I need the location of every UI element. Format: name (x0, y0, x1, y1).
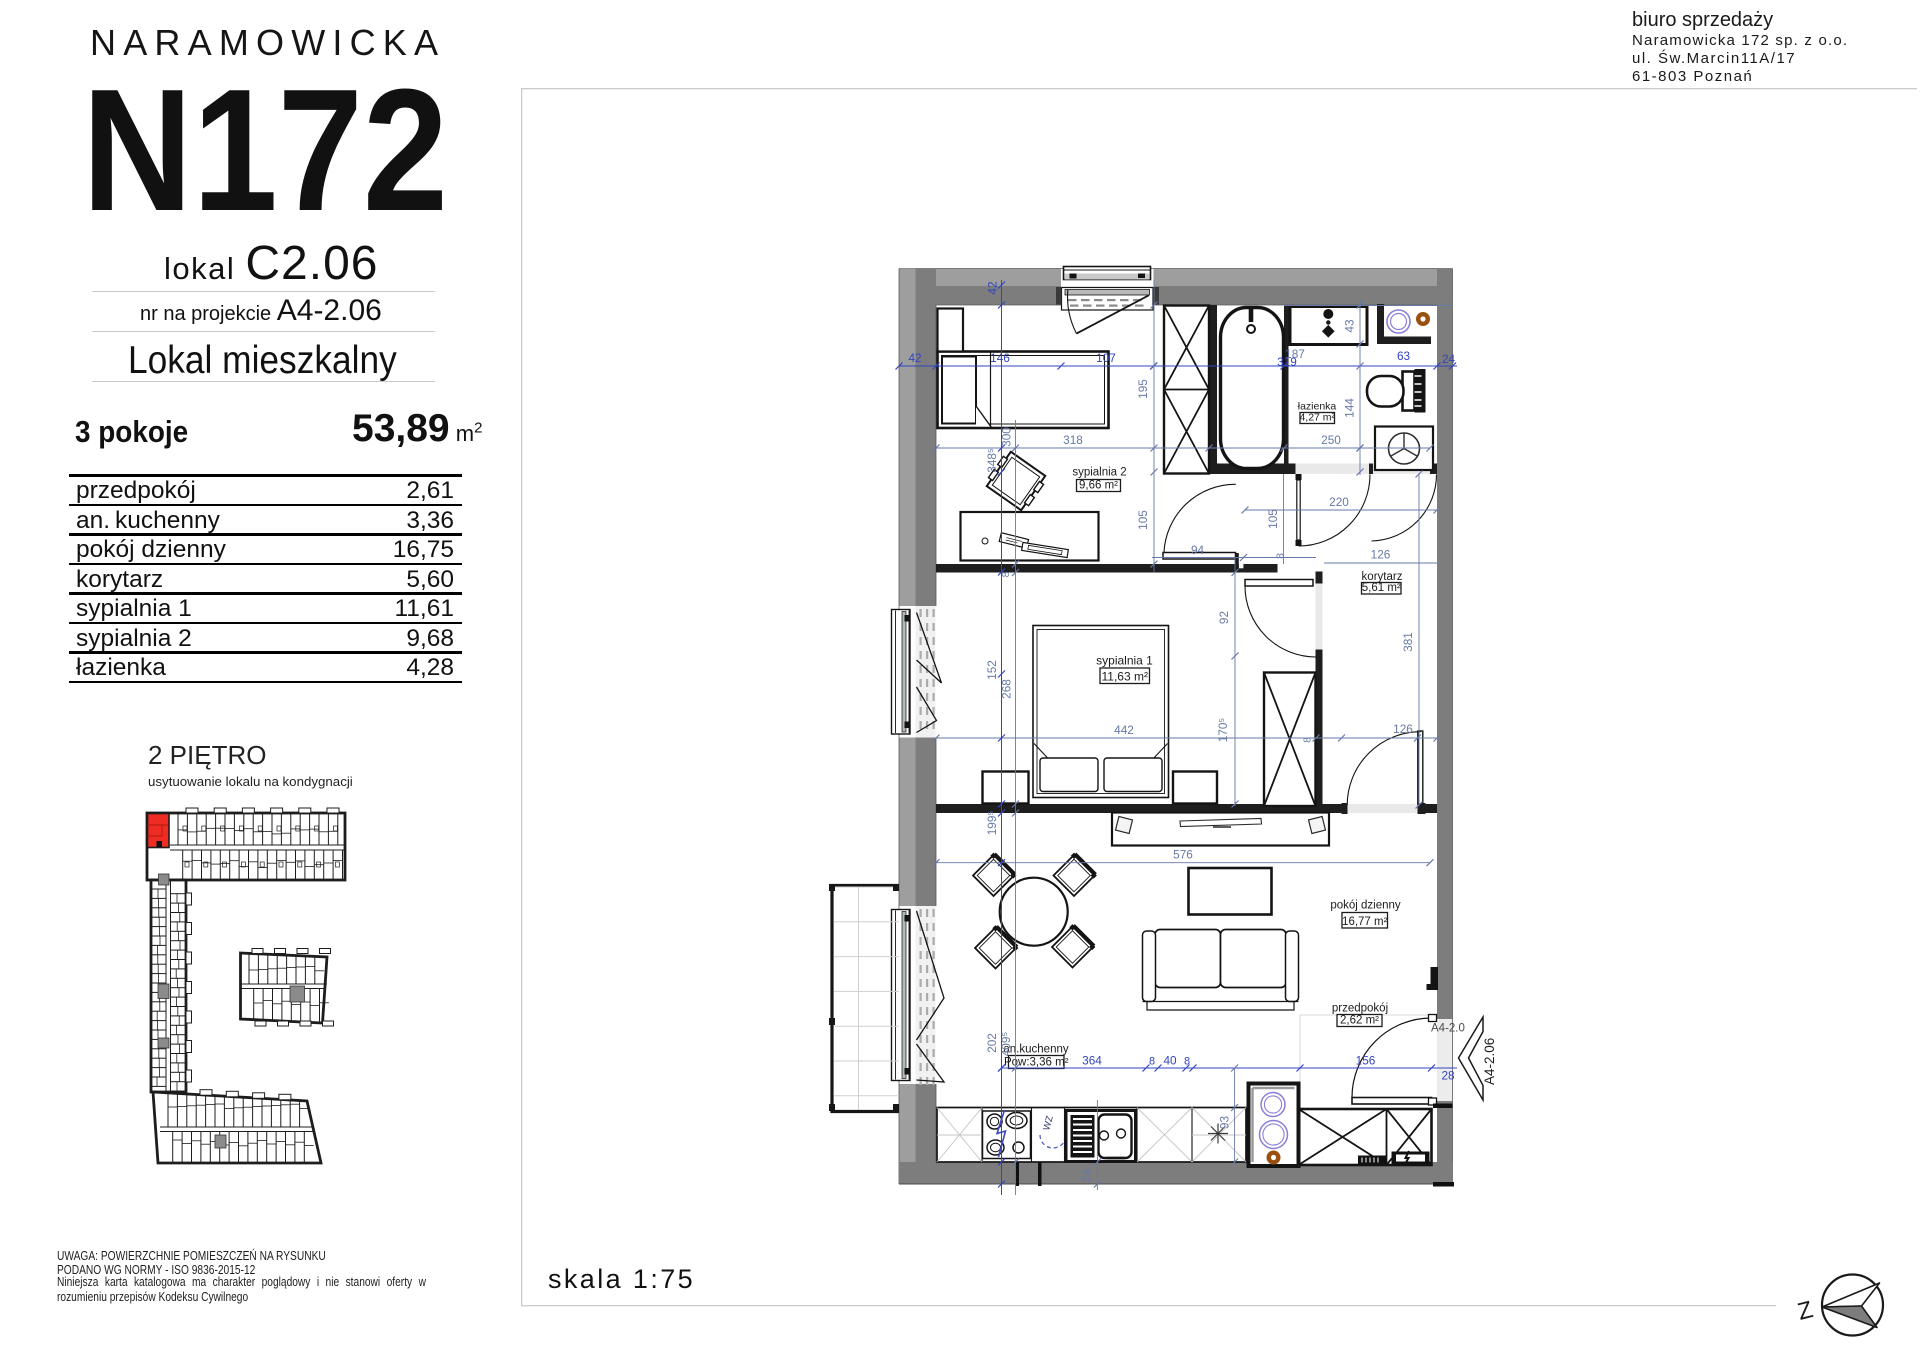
svg-text:42: 42 (908, 351, 921, 365)
svg-text:319: 319 (1277, 355, 1297, 369)
svg-text:576: 576 (1173, 848, 1193, 862)
svg-text:364: 364 (1082, 1054, 1102, 1068)
svg-text:24: 24 (1442, 352, 1456, 366)
svg-text:przedpokój: przedpokój (1332, 1003, 1388, 1015)
svg-text:Pow:3,36 m²: Pow:3,36 m² (1004, 1057, 1069, 1069)
svg-text:250: 250 (1321, 433, 1341, 447)
svg-text:A4-2.0: A4-2.0 (1431, 1023, 1465, 1035)
svg-text:8: 8 (1302, 737, 1314, 743)
svg-text:105: 105 (1136, 510, 1150, 530)
svg-text:sypialnia 2: sypialnia 2 (1072, 467, 1126, 479)
svg-text:409⁵: 409⁵ (999, 1032, 1013, 1057)
svg-text:24: 24 (1080, 1169, 1094, 1183)
svg-text:8: 8 (1149, 1056, 1155, 1068)
svg-text:pokój dzienny: pokój dzienny (1330, 900, 1401, 912)
svg-text:156: 156 (1356, 1054, 1376, 1068)
svg-text:107: 107 (1096, 351, 1116, 365)
svg-text:170⁵: 170⁵ (1216, 718, 1230, 743)
svg-text:40: 40 (1163, 1054, 1177, 1068)
svg-text:202: 202 (985, 1033, 999, 1053)
svg-text:92: 92 (1217, 611, 1231, 624)
svg-text:an.kuchenny: an.kuchenny (1003, 1044, 1068, 1056)
svg-text:11,63 m²: 11,63 m² (1102, 670, 1148, 684)
svg-text:43: 43 (1343, 319, 1357, 333)
svg-text:300: 300 (1000, 427, 1014, 447)
svg-text:318: 318 (1063, 433, 1083, 447)
svg-text:16,77 m²: 16,77 m² (1342, 916, 1388, 928)
svg-text:348⁵: 348⁵ (985, 448, 999, 473)
svg-text:9,66 m²: 9,66 m² (1079, 480, 1118, 492)
svg-text:A4-2.06: A4-2.06 (1482, 1038, 1497, 1085)
svg-text:28: 28 (1441, 1069, 1455, 1083)
svg-text:126: 126 (1393, 722, 1413, 736)
svg-text:146: 146 (990, 351, 1010, 365)
svg-text:126: 126 (1371, 548, 1391, 562)
svg-text:42: 42 (986, 281, 1000, 294)
svg-text:łazienka: łazienka (1298, 401, 1337, 413)
svg-text:korytarz: korytarz (1362, 571, 1403, 583)
svg-text:2,62 m²: 2,62 m² (1340, 1015, 1379, 1027)
svg-text:8: 8 (1275, 553, 1287, 559)
svg-text:144: 144 (1343, 398, 1357, 418)
svg-text:5,61 m²: 5,61 m² (1362, 582, 1401, 594)
svg-text:442: 442 (1114, 723, 1134, 737)
svg-text:105: 105 (1266, 509, 1280, 529)
svg-text:220: 220 (1329, 495, 1349, 509)
svg-text:63: 63 (1397, 349, 1411, 363)
svg-text:268: 268 (1000, 679, 1014, 699)
svg-text:381: 381 (1401, 632, 1415, 652)
svg-text:93: 93 (1218, 1116, 1232, 1130)
svg-text:8: 8 (1000, 571, 1012, 577)
svg-text:199⁵: 199⁵ (985, 811, 999, 836)
svg-text:94: 94 (1191, 543, 1205, 557)
svg-text:152: 152 (985, 660, 999, 680)
svg-text:195: 195 (1136, 379, 1150, 399)
svg-text:Z: Z (1795, 1296, 1816, 1326)
svg-text:4,27 m²: 4,27 m² (1299, 412, 1335, 424)
svg-text:sypialnia 1: sypialnia 1 (1096, 654, 1153, 668)
